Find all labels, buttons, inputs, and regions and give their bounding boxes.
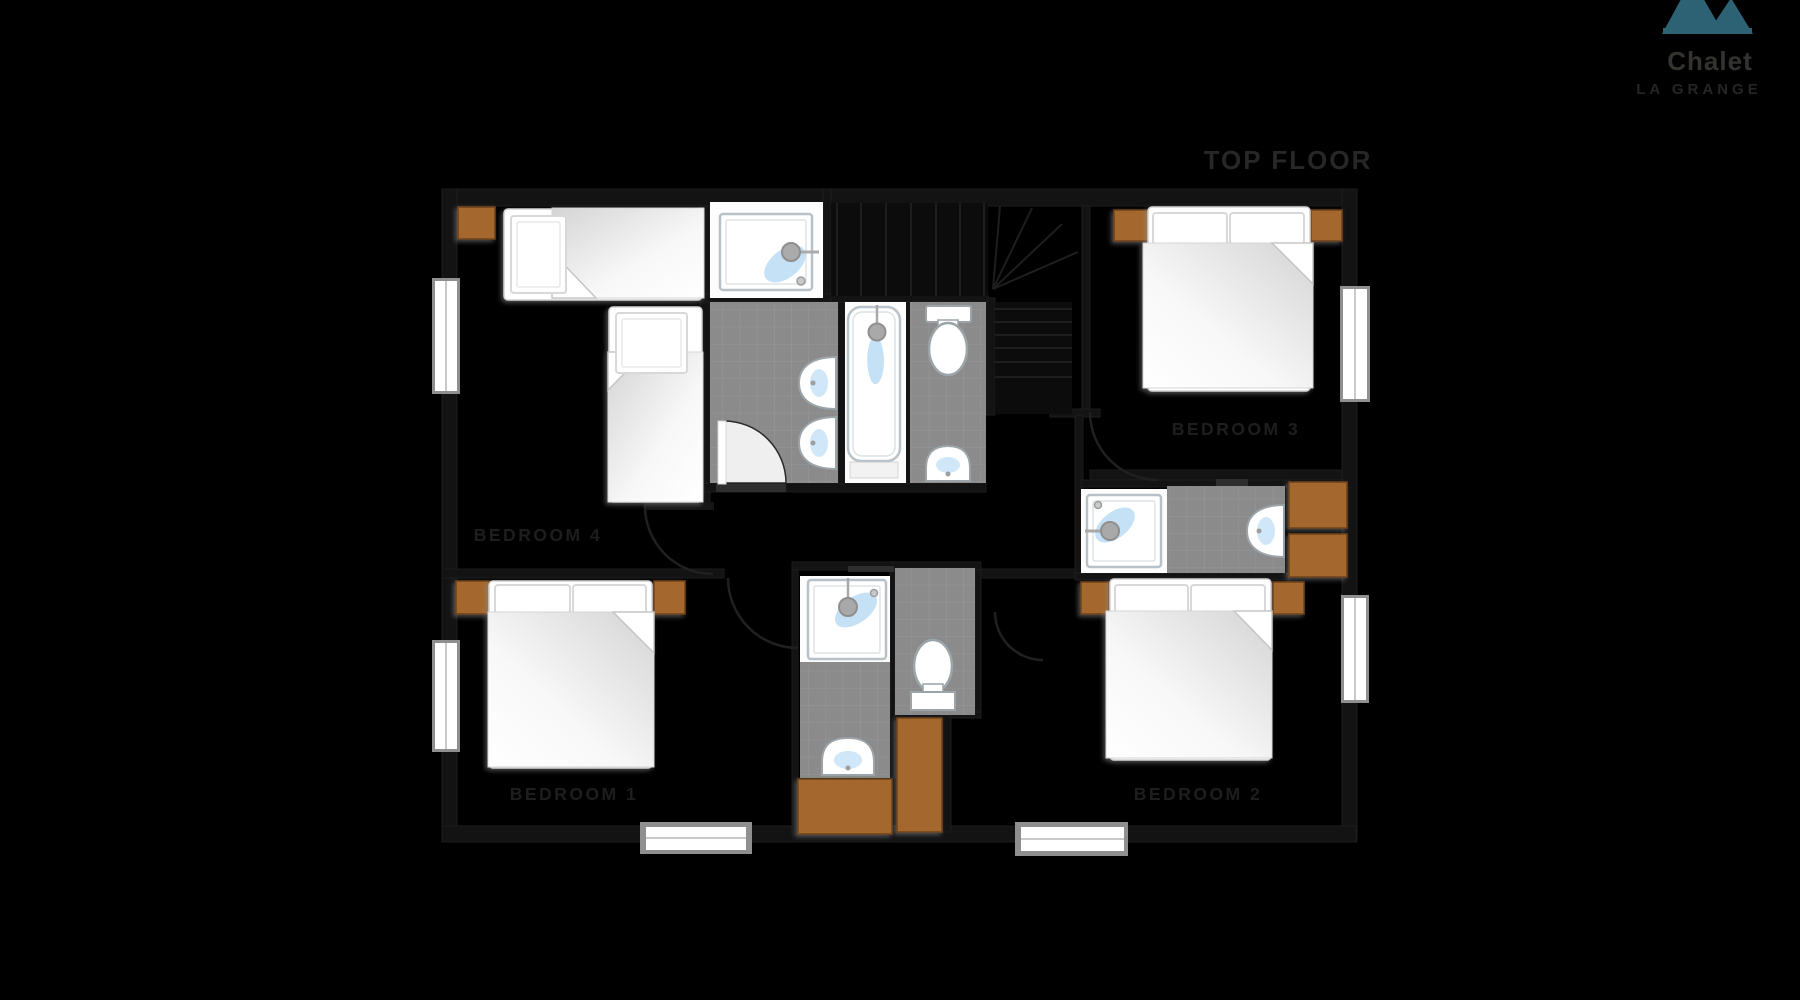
svg-text:LA GRANGE: LA GRANGE xyxy=(1636,81,1761,98)
svg-text:BEDROOM 2: BEDROOM 2 xyxy=(1134,784,1262,804)
svg-text:Chalet: Chalet xyxy=(1667,46,1752,76)
svg-text:BEDROOM 1: BEDROOM 1 xyxy=(510,784,638,804)
svg-text:BEDROOM 3: BEDROOM 3 xyxy=(1172,419,1300,439)
svg-text:BEDROOM 4: BEDROOM 4 xyxy=(474,525,602,545)
svg-text:TOP FLOOR: TOP FLOOR xyxy=(1204,145,1373,175)
